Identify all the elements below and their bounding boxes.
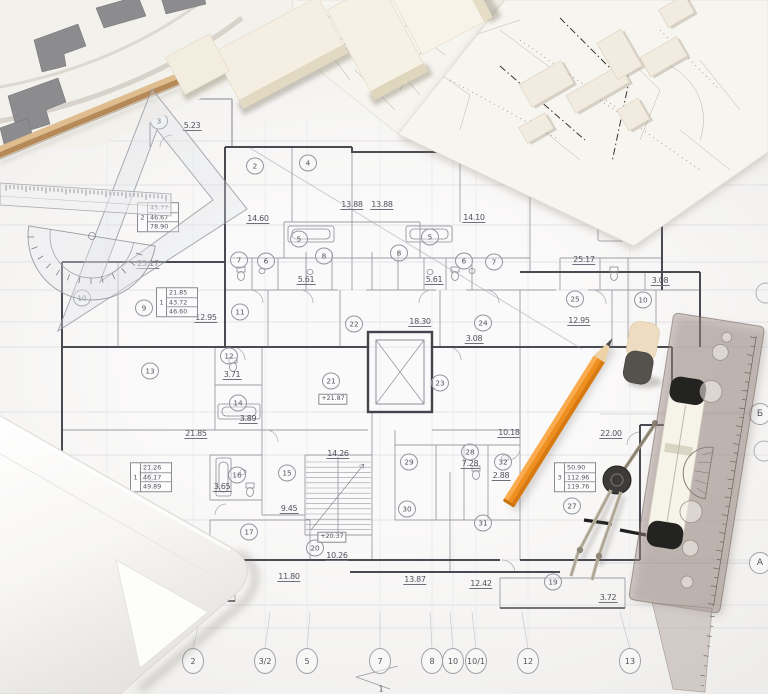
paper-roll — [0, 410, 255, 694]
orange-pencil — [503, 335, 618, 509]
compass-knob — [603, 466, 631, 494]
tools-layer — [0, 0, 768, 694]
eraser — [621, 320, 662, 388]
ruler-tail — [639, 599, 718, 694]
blueprint-photo-scene: 3245576886791011222425101213142123181615… — [0, 0, 768, 694]
transparent-ruler — [0, 183, 171, 216]
protractor — [19, 223, 156, 310]
